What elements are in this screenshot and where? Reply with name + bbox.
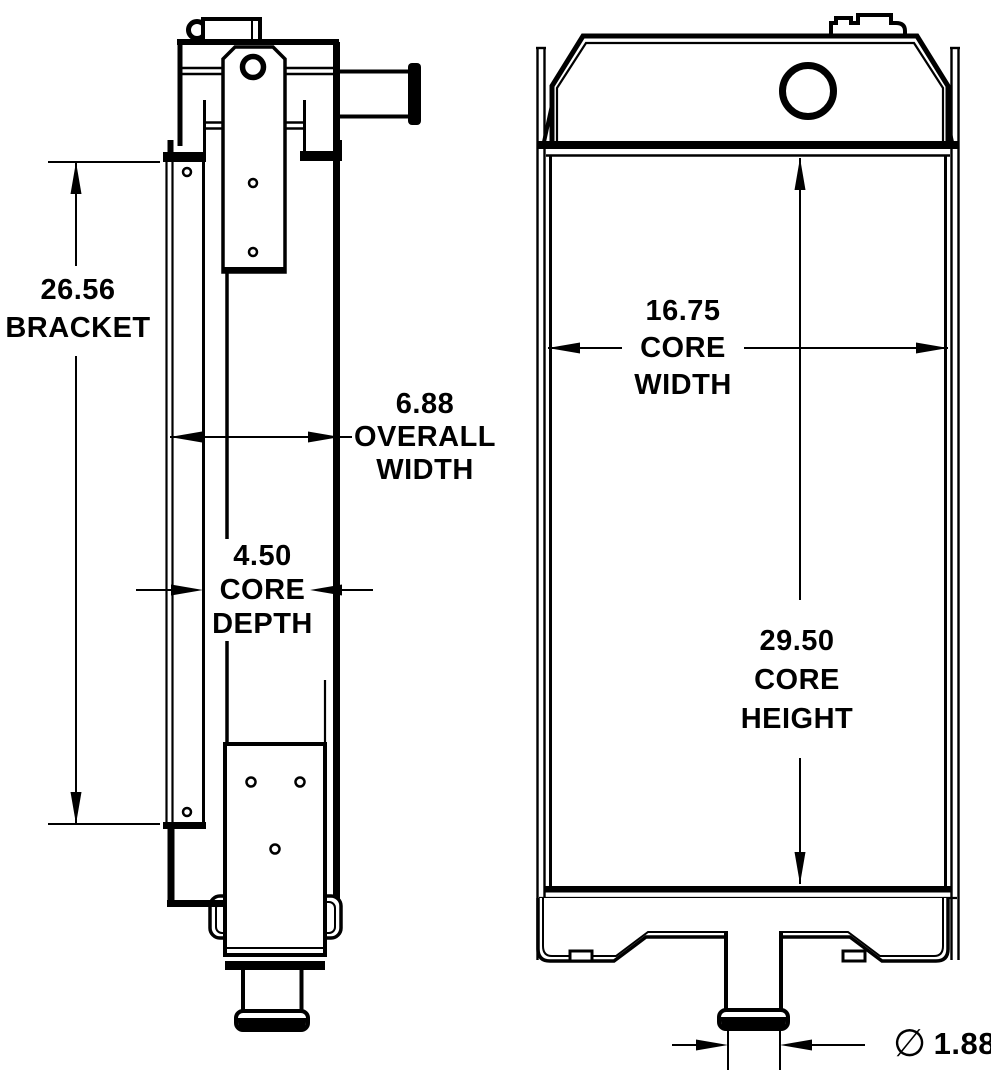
arrowhead-right [171,585,203,596]
arrowhead-down [71,792,82,824]
arrowhead-right [696,1040,728,1051]
dim-line-core-depth [136,585,373,596]
dimension-lines-layer [0,0,991,1078]
dim-line-core-height [795,158,806,884]
arrowhead-right [308,432,340,443]
arrowhead-left [780,1040,812,1051]
dim-line-bracket [48,162,160,824]
dim-line-overall-width [170,432,352,443]
arrowhead-down [795,852,806,884]
arrowhead-up [795,158,806,190]
arrowhead-left [170,432,202,443]
dimension-lines [48,158,948,1070]
arrowhead-left [548,343,580,354]
radiator-technical-drawing: 26.56 BRACKET 6.88 OVERALL WIDTH 4.50 CO… [0,0,991,1078]
arrowhead-right [916,343,948,354]
dim-line-core-width [548,343,948,354]
arrowhead-up [71,162,82,194]
dim-line-outlet-diameter [672,1018,865,1070]
arrowhead-left [310,585,342,596]
